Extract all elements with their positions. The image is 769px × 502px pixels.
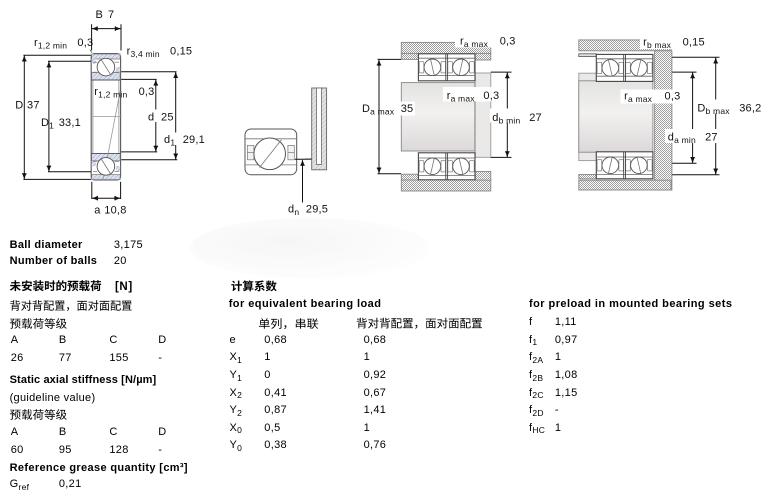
svg-text:0,15: 0,15 [170, 46, 192, 58]
svg-text:0,3: 0,3 [483, 90, 499, 102]
svg-text:36,2: 36,2 [739, 102, 761, 114]
svg-text:27: 27 [529, 112, 542, 124]
svg-text:D1​: D1​ [41, 117, 54, 131]
svg-text:D: D [15, 99, 23, 111]
svg-text:B: B [96, 9, 104, 21]
svg-text:0,3: 0,3 [665, 91, 681, 103]
svg-text:0,15: 0,15 [683, 36, 705, 48]
svg-text:25: 25 [161, 111, 174, 123]
svg-text:0,3: 0,3 [139, 86, 155, 98]
svg-text:33,1: 33,1 [59, 117, 81, 129]
svg-text:dn​: dn​ [288, 203, 299, 217]
svg-text:27: 27 [705, 131, 718, 143]
svg-text:0,3: 0,3 [500, 36, 516, 48]
svg-text:Da max​: Da max​ [362, 103, 395, 117]
svg-text:10,8: 10,8 [104, 204, 126, 216]
svg-text:a: a [94, 204, 101, 216]
svg-text:r1,2 min​: r1,2 min​ [34, 37, 67, 51]
svg-text:r3,4 min​: r3,4 min​ [127, 46, 160, 60]
svg-text:[N]: [N] [115, 281, 133, 293]
svg-text:d: d [148, 111, 154, 123]
svg-text:29,5: 29,5 [306, 203, 328, 215]
svg-text:0,3: 0,3 [77, 37, 93, 49]
svg-text:37: 37 [27, 99, 40, 111]
svg-text:35: 35 [401, 103, 414, 115]
svg-text:29,1: 29,1 [183, 134, 205, 146]
svg-text:7: 7 [108, 9, 114, 21]
